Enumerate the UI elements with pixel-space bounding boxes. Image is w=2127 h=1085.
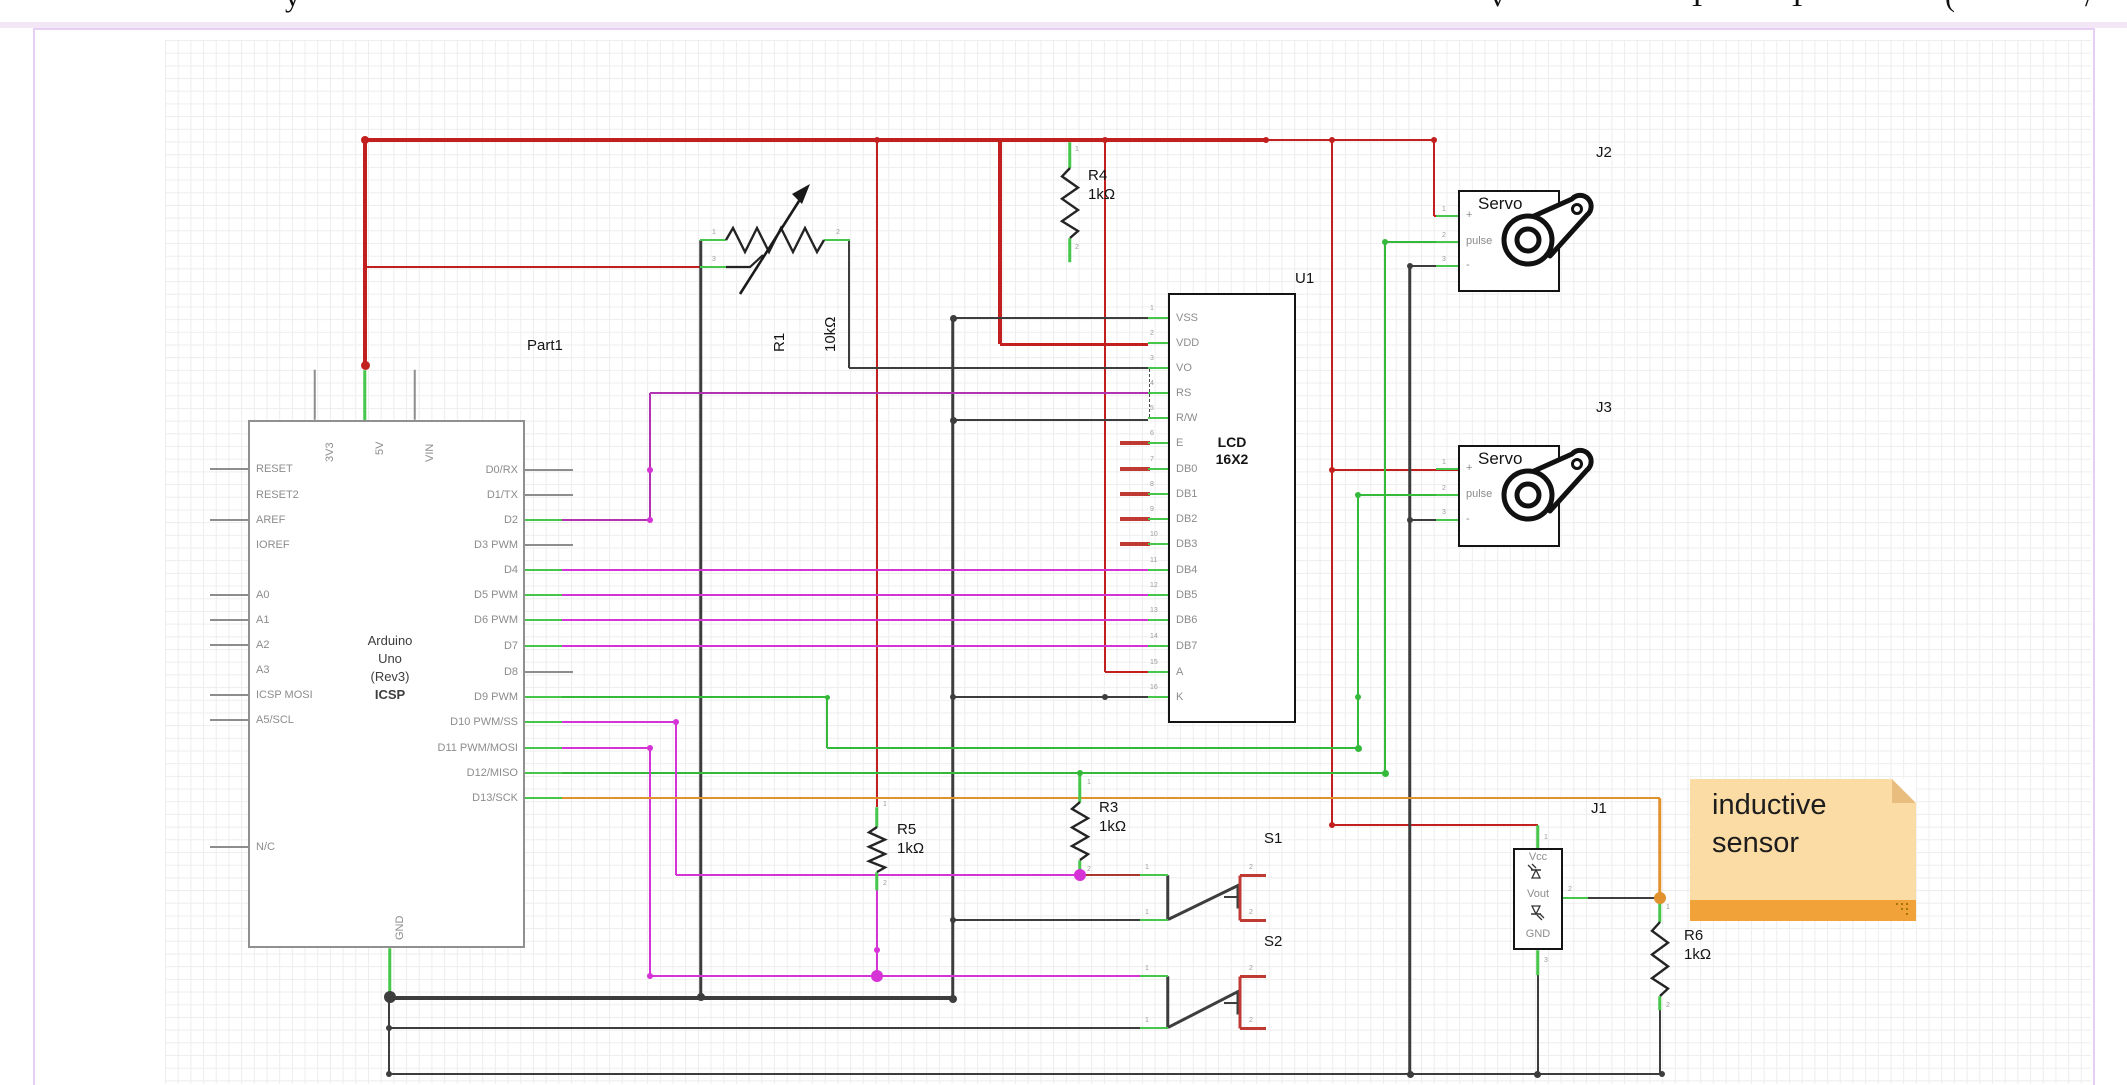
wire[interactable] (649, 748, 651, 976)
lcd-pin[interactable] (1148, 594, 1168, 597)
wire[interactable] (1240, 1027, 1266, 1030)
wire[interactable] (1239, 976, 1242, 1028)
pin-label: 14 (1150, 633, 1158, 640)
lcd-pin[interactable] (1148, 493, 1168, 496)
wire[interactable] (1239, 875, 1242, 920)
junction-dot (673, 719, 679, 725)
pin-label: DB6 (1176, 614, 1197, 626)
pin-label: D8 (368, 666, 518, 678)
junction-dot (1102, 137, 1108, 143)
lcd-name-line: LCD (1196, 434, 1268, 451)
pin-label: D5 PWM (368, 589, 518, 601)
wire[interactable] (953, 317, 1148, 319)
diode-icon (1526, 902, 1546, 922)
j1-pin-vcc-label: Vcc (1515, 851, 1561, 863)
pin-label: VDD (1176, 337, 1199, 349)
resistor-label-line: R6 (1684, 926, 1711, 945)
junction-dot (647, 517, 653, 523)
r4-label: R41kΩ (1088, 166, 1115, 204)
lcd-pin[interactable] (1148, 671, 1168, 674)
pin-label: D3 PWM (368, 539, 518, 551)
lcd-pin[interactable] (1148, 696, 1168, 699)
arduino-right-pin[interactable] (525, 494, 573, 496)
switch-s1-ref-label: S1 (1264, 830, 1282, 847)
servo-pin[interactable] (1436, 215, 1458, 218)
arduino-left-pin[interactable] (210, 644, 248, 646)
pin-label: A0 (256, 589, 269, 601)
resistor-r3[interactable] (1069, 802, 1091, 860)
wire[interactable] (390, 996, 953, 1000)
pin-label: 2 (1568, 886, 1572, 893)
junction-dot (1263, 137, 1269, 143)
pin-label: 11 (1150, 557, 1157, 564)
wire[interactable] (649, 393, 651, 520)
pin-label: 1 (1145, 864, 1149, 871)
junction-dot (950, 917, 956, 923)
pin-label: D13/SCK (368, 792, 518, 804)
junction-dot (1102, 694, 1108, 700)
sticky-note-fold-corner (1892, 779, 1916, 803)
pin-label: 2 (1442, 485, 1446, 492)
arduino-top-pin-label: VIN (424, 444, 436, 462)
pin-label: pulse (1466, 235, 1492, 247)
arduino-gnd-label: GND (394, 916, 406, 940)
cropped-glyph: ( (1945, 0, 1955, 14)
resistor-r6[interactable] (1649, 922, 1671, 996)
lcd-pin[interactable] (1148, 543, 1168, 546)
arduino-right-pin[interactable] (525, 645, 562, 648)
schematic-canvas: yvTT(/ Arduino Uno (Rev3) ICSP Part1 LCD… (0, 0, 2127, 1085)
pin-label: 1 (883, 801, 887, 808)
wire[interactable] (1537, 950, 1540, 975)
junction-dot (647, 973, 653, 979)
r1-label: R1 10kΩ (737, 317, 873, 352)
lcd-component[interactable] (1168, 293, 1296, 723)
wire[interactable] (364, 370, 367, 420)
wire[interactable] (365, 138, 1266, 142)
pin-label: 1 (1145, 965, 1149, 972)
wire[interactable] (1140, 1027, 1168, 1030)
wire[interactable] (1410, 265, 1436, 267)
pin-label: 2 (1249, 864, 1253, 871)
pin-label: D6 PWM (368, 614, 518, 626)
r6-label: R61kΩ (1684, 926, 1711, 964)
resistor-label-line: 1kΩ (1099, 817, 1126, 836)
wire[interactable] (560, 569, 1148, 571)
pin-label: A2 (256, 639, 269, 651)
pin-label: D0/RX (368, 464, 518, 476)
junction-dot (386, 1025, 392, 1031)
wire[interactable] (560, 747, 650, 749)
junction-dot (384, 991, 396, 1003)
lcd-pin[interactable] (1148, 442, 1168, 445)
lcd-pin[interactable] (1148, 645, 1168, 648)
arduino-right-pin[interactable] (525, 772, 562, 775)
wire[interactable] (1588, 897, 1658, 899)
arduino-left-pin[interactable] (210, 468, 248, 470)
pin-label: 2 (1666, 1002, 1670, 1009)
wire[interactable] (953, 419, 1148, 421)
pin-label: 16 (1150, 684, 1158, 691)
resistor-label-line: 1kΩ (1088, 185, 1115, 204)
junction-dot (1407, 263, 1413, 269)
wire[interactable] (1000, 343, 1148, 346)
wire[interactable] (1240, 919, 1266, 922)
wire[interactable] (876, 140, 878, 807)
wire[interactable] (560, 619, 1148, 621)
pin-label: K (1176, 691, 1183, 703)
wire[interactable] (1659, 798, 1662, 898)
wire[interactable] (1080, 874, 1142, 876)
pin-label: VSS (1176, 312, 1198, 324)
pin-label: R/W (1176, 412, 1197, 424)
pin-label: 1 (1442, 206, 1446, 213)
wire[interactable] (1167, 976, 1170, 1028)
pin-label: 1 (1075, 146, 1079, 153)
servo-pin[interactable] (1436, 265, 1458, 268)
pin-label: IOREF (256, 539, 290, 551)
pin-label: A1 (256, 614, 269, 626)
arduino-right-pin[interactable] (525, 469, 573, 471)
r3-label: R31kΩ (1099, 798, 1126, 836)
arduino-right-pin[interactable] (525, 519, 562, 522)
pin-label: DB2 (1176, 513, 1197, 525)
pin-label: 2 (1249, 909, 1253, 916)
pin-label: 4 (1150, 380, 1154, 387)
pin-label: D4 (368, 564, 518, 576)
junction-dot (1407, 517, 1413, 523)
pin-label: 2 (1075, 244, 1079, 251)
pin-label: 1 (1145, 1017, 1149, 1024)
wire[interactable] (560, 696, 827, 698)
wire[interactable] (1384, 242, 1386, 773)
pin-label: DB7 (1176, 640, 1197, 652)
wire[interactable] (1433, 140, 1435, 216)
cropped-text-fragments: yvTT(/ (0, 0, 2127, 16)
wire[interactable] (998, 140, 1002, 344)
pin-label: 1 (1666, 904, 1670, 911)
lcd-pin-unconnected[interactable] (1120, 542, 1150, 546)
arduino-left-pin[interactable] (210, 594, 248, 596)
cropped-glyph: v (1490, 0, 1505, 14)
wire[interactable] (826, 697, 828, 748)
junction-dot (647, 745, 653, 751)
wire[interactable] (1069, 142, 1072, 168)
pin-label: 15 (1150, 659, 1158, 666)
r1-ref: R1 (771, 317, 788, 352)
wire[interactable] (560, 519, 650, 521)
lcd-name-line: 16X2 (1196, 451, 1268, 468)
photodiode-icon (1526, 864, 1546, 884)
wire[interactable] (1409, 266, 1412, 1074)
lcd-pin[interactable] (1148, 342, 1168, 345)
pin-label: D10 PWM/SS (368, 716, 518, 728)
junction-dot (647, 467, 653, 473)
junction-dot (1355, 694, 1361, 700)
arduino-right-pin[interactable] (525, 721, 562, 724)
junction-dot (697, 993, 705, 1001)
wire[interactable] (389, 1027, 1142, 1029)
wire[interactable] (1266, 139, 1434, 141)
junction-dot (950, 315, 957, 322)
wire[interactable] (560, 772, 1385, 774)
pin-label: DB5 (1176, 589, 1197, 601)
cropped-glyph: T (1788, 0, 1806, 14)
resistor-label-line: R5 (897, 820, 924, 839)
switch-s2-ref-label: S2 (1264, 933, 1282, 950)
wire[interactable] (1563, 897, 1588, 900)
pin-label: 3 (712, 256, 716, 263)
pin-label: + (1466, 209, 1472, 221)
cropped-glyph: y (285, 0, 300, 14)
wire[interactable] (1224, 896, 1238, 898)
junction-dot (1654, 892, 1666, 904)
junction-dot (1355, 745, 1362, 752)
wire[interactable] (1140, 874, 1168, 877)
pin-label: D7 (368, 640, 518, 652)
pin-label: D2 (368, 514, 518, 526)
servo-pin[interactable] (1436, 241, 1458, 244)
lcd-pin-unconnected[interactable] (1120, 467, 1150, 471)
arduino-right-pin[interactable] (525, 696, 562, 699)
wire[interactable] (876, 890, 878, 976)
wire[interactable] (1069, 238, 1072, 262)
resistor-label-line: 1kΩ (1684, 945, 1711, 964)
pin-label: 1 (1150, 305, 1154, 312)
j1-pin-vout-label: Vout (1515, 888, 1561, 900)
wire[interactable] (388, 997, 390, 1074)
resistor-r5[interactable] (866, 827, 888, 872)
arduino-right-pin[interactable] (525, 544, 573, 546)
junction-dot (825, 695, 830, 700)
pin-label: 1 (1544, 834, 1548, 841)
lcd-pin[interactable] (1148, 468, 1168, 471)
wire[interactable] (1332, 824, 1538, 826)
resistor-label-line: 1kΩ (897, 839, 924, 858)
lcd-pin-unconnected[interactable] (1120, 492, 1150, 496)
junction-dot (1329, 467, 1335, 473)
potentiometer-r1[interactable] (700, 170, 860, 310)
pin-label: 12 (1150, 582, 1158, 589)
lcd-pin[interactable] (1148, 619, 1168, 622)
pin-label: 13 (1150, 607, 1158, 614)
wire[interactable] (1105, 671, 1148, 673)
pin-label: 2 (883, 880, 887, 887)
pin-label: A5/SCL (256, 714, 294, 726)
arduino-left-pin[interactable] (210, 619, 248, 621)
pin-label: 2 (1150, 330, 1154, 337)
arduino-right-pin[interactable] (525, 594, 562, 597)
wire[interactable] (827, 747, 1358, 749)
arduino-right-pin[interactable] (525, 619, 562, 622)
pin-label: 8 (1150, 481, 1154, 488)
wire[interactable] (389, 948, 392, 997)
pin-label: VO (1176, 362, 1192, 374)
lcd-pin[interactable] (1148, 417, 1168, 420)
pin-label: 7 (1150, 456, 1154, 463)
wire[interactable] (414, 370, 416, 420)
pin-label: RESET2 (256, 489, 299, 501)
pin-label: 3 (1442, 256, 1446, 263)
arduino-right-pin[interactable] (525, 797, 562, 800)
cropped-glyph: T (1688, 0, 1706, 14)
wire[interactable] (1331, 140, 1333, 825)
junction-dot (1382, 770, 1389, 777)
servo-pin[interactable] (1436, 468, 1458, 471)
pin-label: 1 (1145, 909, 1149, 916)
wire[interactable] (1240, 874, 1266, 877)
pin-label: A (1176, 666, 1183, 678)
wire[interactable] (363, 140, 367, 365)
arduino-top-pin-label: 5V (374, 442, 386, 455)
pin-label: D11 PWM/MOSI (368, 742, 518, 754)
pin-label: 1 (1087, 779, 1091, 786)
wire[interactable] (1104, 140, 1106, 672)
junction-dot (874, 947, 880, 953)
wire[interactable] (1224, 1002, 1238, 1004)
wire[interactable] (1357, 495, 1359, 748)
wire[interactable] (1240, 975, 1266, 978)
arduino-top-pin-label: 3V3 (324, 442, 336, 462)
junction-dot (361, 136, 369, 144)
wire[interactable] (876, 807, 879, 827)
arduino-right-pin[interactable] (525, 569, 562, 572)
wire[interactable] (1140, 975, 1168, 978)
wire[interactable] (876, 872, 879, 890)
wire[interactable] (1140, 919, 1168, 922)
arduino-right-pin[interactable] (525, 747, 562, 750)
wire[interactable] (389, 1073, 1662, 1076)
junction-dot (874, 137, 880, 143)
wire[interactable] (953, 696, 1148, 698)
arduino-left-pin[interactable] (210, 694, 248, 696)
pin-label: 9 (1150, 506, 1154, 513)
pin-label: N/C (256, 841, 275, 853)
servo-j3-ref-label: J3 (1596, 399, 1612, 416)
wire[interactable] (953, 919, 1142, 921)
lcd-ref-label: U1 (1295, 270, 1314, 287)
lcd-pin-unconnected[interactable] (1120, 517, 1150, 521)
wire[interactable] (650, 975, 1142, 977)
pin-label: 2 (836, 229, 840, 236)
servo-pin[interactable] (1436, 494, 1458, 497)
pin-label: - (1466, 259, 1470, 271)
pin-label: E (1176, 437, 1183, 449)
wire[interactable] (314, 370, 316, 420)
note-line-2: sensor (1712, 824, 1826, 862)
arduino-left-pin[interactable] (210, 719, 248, 721)
wire[interactable] (849, 367, 1148, 369)
pin-label: DB4 (1176, 564, 1197, 576)
wire[interactable] (560, 645, 1148, 647)
pin-label: 10 (1150, 531, 1158, 538)
pin-label: 2 (1087, 866, 1091, 873)
note-resize-grip[interactable] (1896, 903, 1898, 905)
arduino-right-pin[interactable] (525, 671, 573, 673)
wire[interactable] (650, 392, 1148, 394)
arduino-left-pin[interactable] (210, 846, 248, 848)
r5-label: R51kΩ (897, 820, 924, 858)
resistor-r4[interactable] (1059, 168, 1081, 238)
junction-dot (1074, 869, 1086, 881)
junction-dot (1329, 822, 1335, 828)
pin-label: + (1466, 462, 1472, 474)
wire[interactable] (560, 721, 676, 723)
wire[interactable] (365, 266, 700, 268)
pin-label: 3 (1150, 355, 1154, 362)
wire[interactable] (560, 594, 1148, 596)
wire[interactable] (1537, 975, 1539, 1074)
sticky-note-bar (1690, 900, 1916, 921)
pin-label: D1/TX (368, 489, 518, 501)
resistor-label-line: R4 (1088, 166, 1115, 185)
wire[interactable] (1167, 875, 1170, 920)
pin-label: D12/MISO (368, 767, 518, 779)
lcd-pin[interactable] (1148, 317, 1168, 320)
servo-j2-ref-label: J2 (1596, 144, 1612, 161)
pin-label: DB3 (1176, 538, 1197, 550)
arduino-ref-label: Part1 (527, 337, 563, 354)
junction-dot (949, 995, 957, 1003)
wire[interactable] (1659, 996, 1662, 1010)
pin-label: 5 (1150, 405, 1154, 412)
resistor-label-line: R3 (1099, 798, 1126, 817)
pin-label: pulse (1466, 488, 1492, 500)
wire[interactable] (1659, 1010, 1661, 1074)
pin-label: DB0 (1176, 463, 1197, 475)
lcd-pin[interactable] (1148, 367, 1168, 370)
j1-pin-gnd-label: GND (1515, 928, 1561, 940)
pin-label: A3 (256, 664, 269, 676)
pin-label: D9 PWM (368, 691, 518, 703)
r1-value: 10kΩ (822, 317, 839, 352)
note-line-1: inductive (1712, 786, 1826, 824)
junction-dot (950, 417, 957, 424)
cropped-glyph: / (2085, 0, 2093, 14)
lcd-pin[interactable] (1148, 518, 1168, 521)
servo-pin[interactable] (1436, 519, 1458, 522)
sticky-note-text: inductive sensor (1712, 786, 1826, 862)
pin-label: 3 (1544, 957, 1548, 964)
lcd-pin[interactable] (1148, 569, 1168, 572)
pin-label: DB1 (1176, 488, 1197, 500)
junction-dot (386, 1071, 392, 1077)
lcd-name: LCD 16X2 (1196, 434, 1268, 468)
pin-label: 1 (712, 229, 716, 236)
junction-dot (871, 970, 883, 982)
junction-dot (1355, 492, 1361, 498)
junction-dot (1534, 1071, 1541, 1078)
wire[interactable] (1079, 773, 1082, 802)
pin-label: AREF (256, 514, 285, 526)
junction-dot (1407, 1071, 1414, 1078)
arduino-left-pin[interactable] (210, 519, 248, 521)
junction-dot (1077, 770, 1083, 776)
pin-label: RS (1176, 387, 1191, 399)
servo-horn-icon (1500, 451, 1592, 523)
pin-label: 1 (1442, 459, 1446, 466)
j1-ref-label: J1 (1591, 800, 1607, 817)
junction-dot (950, 694, 956, 700)
junction-dot (1382, 239, 1388, 245)
lcd-pin-unconnected[interactable] (1120, 441, 1150, 445)
wire[interactable] (1537, 825, 1540, 848)
lcd-pin[interactable] (1148, 392, 1168, 395)
pin-label: ICSP MOSI (256, 689, 313, 701)
pin-label: 2 (1442, 232, 1446, 239)
pin-label: 3 (1442, 509, 1446, 516)
pin-label: - (1466, 513, 1470, 525)
